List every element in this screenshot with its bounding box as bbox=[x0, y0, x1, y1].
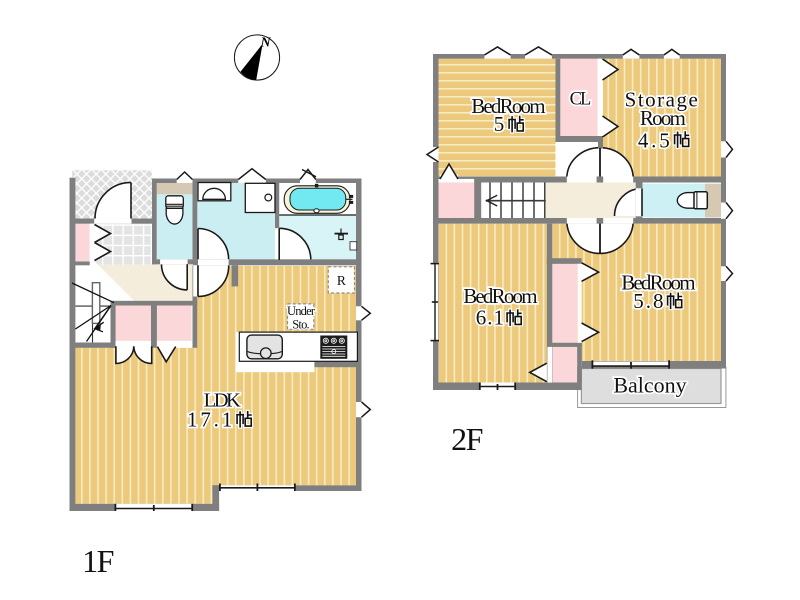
svg-text:BedRoom: BedRoom bbox=[471, 94, 545, 118]
svg-text:1F: 1F bbox=[82, 543, 114, 579]
svg-text:2F: 2F bbox=[451, 421, 483, 457]
svg-text:5: 5 bbox=[494, 112, 507, 136]
svg-text:Sto.: Sto. bbox=[292, 318, 309, 332]
svg-text:BedRoom: BedRoom bbox=[463, 284, 537, 308]
svg-text:R: R bbox=[337, 273, 346, 288]
svg-text:Room: Room bbox=[640, 106, 686, 130]
svg-text:Balcony: Balcony bbox=[613, 373, 686, 398]
svg-text:N: N bbox=[259, 36, 271, 51]
svg-text:Under: Under bbox=[287, 304, 316, 318]
svg-text:6.1: 6.1 bbox=[476, 306, 505, 330]
svg-text:5.8: 5.8 bbox=[633, 289, 665, 313]
svg-text:4.5: 4.5 bbox=[638, 129, 673, 153]
svg-text:17.1: 17.1 bbox=[187, 408, 235, 432]
svg-text:CL: CL bbox=[570, 90, 591, 110]
